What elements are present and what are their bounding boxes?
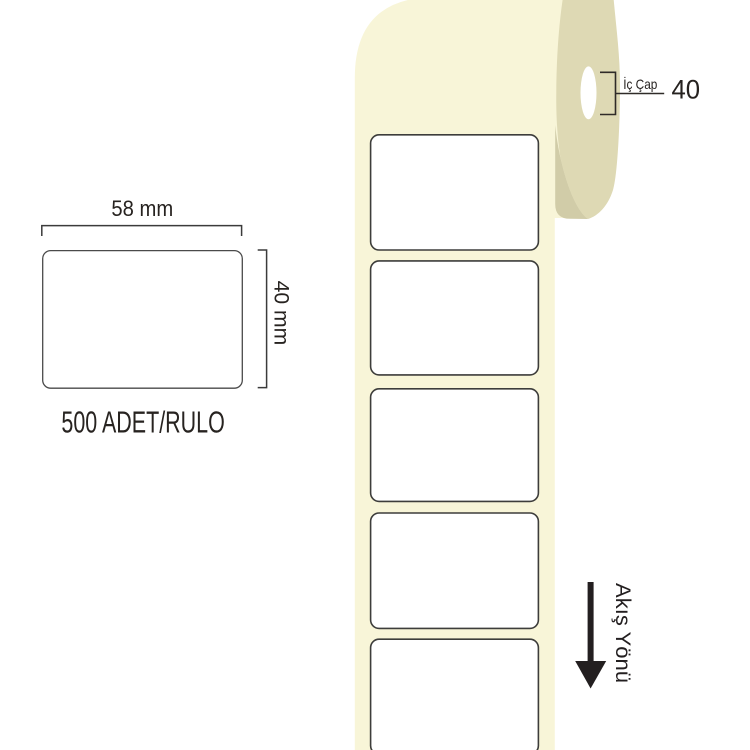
svg-text:40 mm: 40 mm [270,281,295,346]
svg-text:Akış Yönü: Akış Yönü [611,583,635,683]
svg-text:58 mm: 58 mm [111,196,173,221]
svg-text:500 ADET/RULO: 500 ADET/RULO [61,405,224,440]
svg-text:İç Çap: İç Çap [623,75,657,92]
svg-text:40: 40 [672,74,701,104]
